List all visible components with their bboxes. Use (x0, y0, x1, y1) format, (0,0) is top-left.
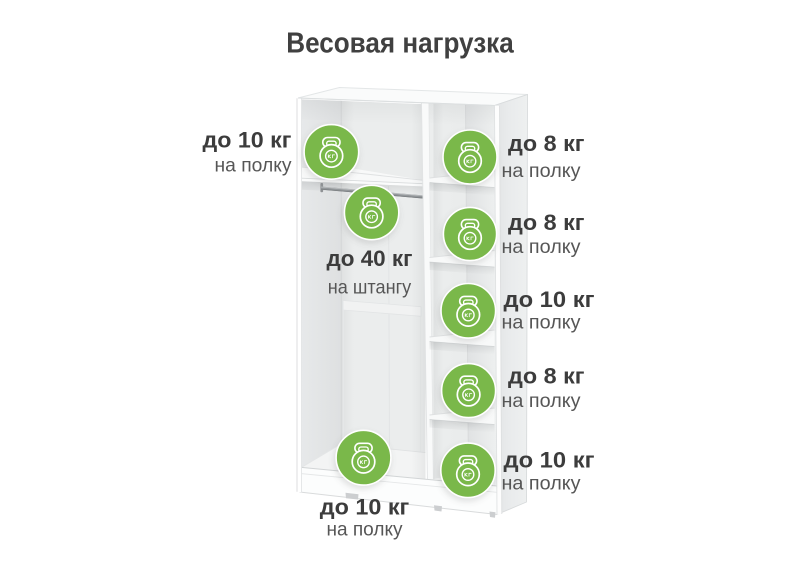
svg-text:на полку: на полку (215, 154, 292, 176)
svg-text:на штангу: на штангу (328, 277, 412, 299)
svg-text:на полку: на полку (502, 472, 581, 494)
svg-text:до 10 кг: до 10 кг (203, 127, 292, 152)
svg-text:на полку: на полку (502, 236, 581, 258)
svg-text:до 8 кг: до 8 кг (508, 210, 585, 235)
svg-text:до 10 кг: до 10 кг (504, 287, 595, 312)
svg-text:до 8 кг: до 8 кг (508, 131, 585, 156)
svg-text:на полку: на полку (502, 311, 581, 333)
svg-text:до 40 кг: до 40 кг (327, 246, 413, 271)
svg-text:до 10 кг: до 10 кг (504, 448, 595, 473)
svg-text:на полку: на полку (502, 160, 581, 182)
svg-text:на полку: на полку (502, 390, 581, 412)
svg-text:Весовая нагрузка: Весовая нагрузка (286, 28, 515, 60)
svg-text:до 10 кг: до 10 кг (320, 494, 410, 519)
svg-text:на полку: на полку (327, 519, 403, 541)
svg-text:до 8 кг: до 8 кг (508, 363, 585, 388)
